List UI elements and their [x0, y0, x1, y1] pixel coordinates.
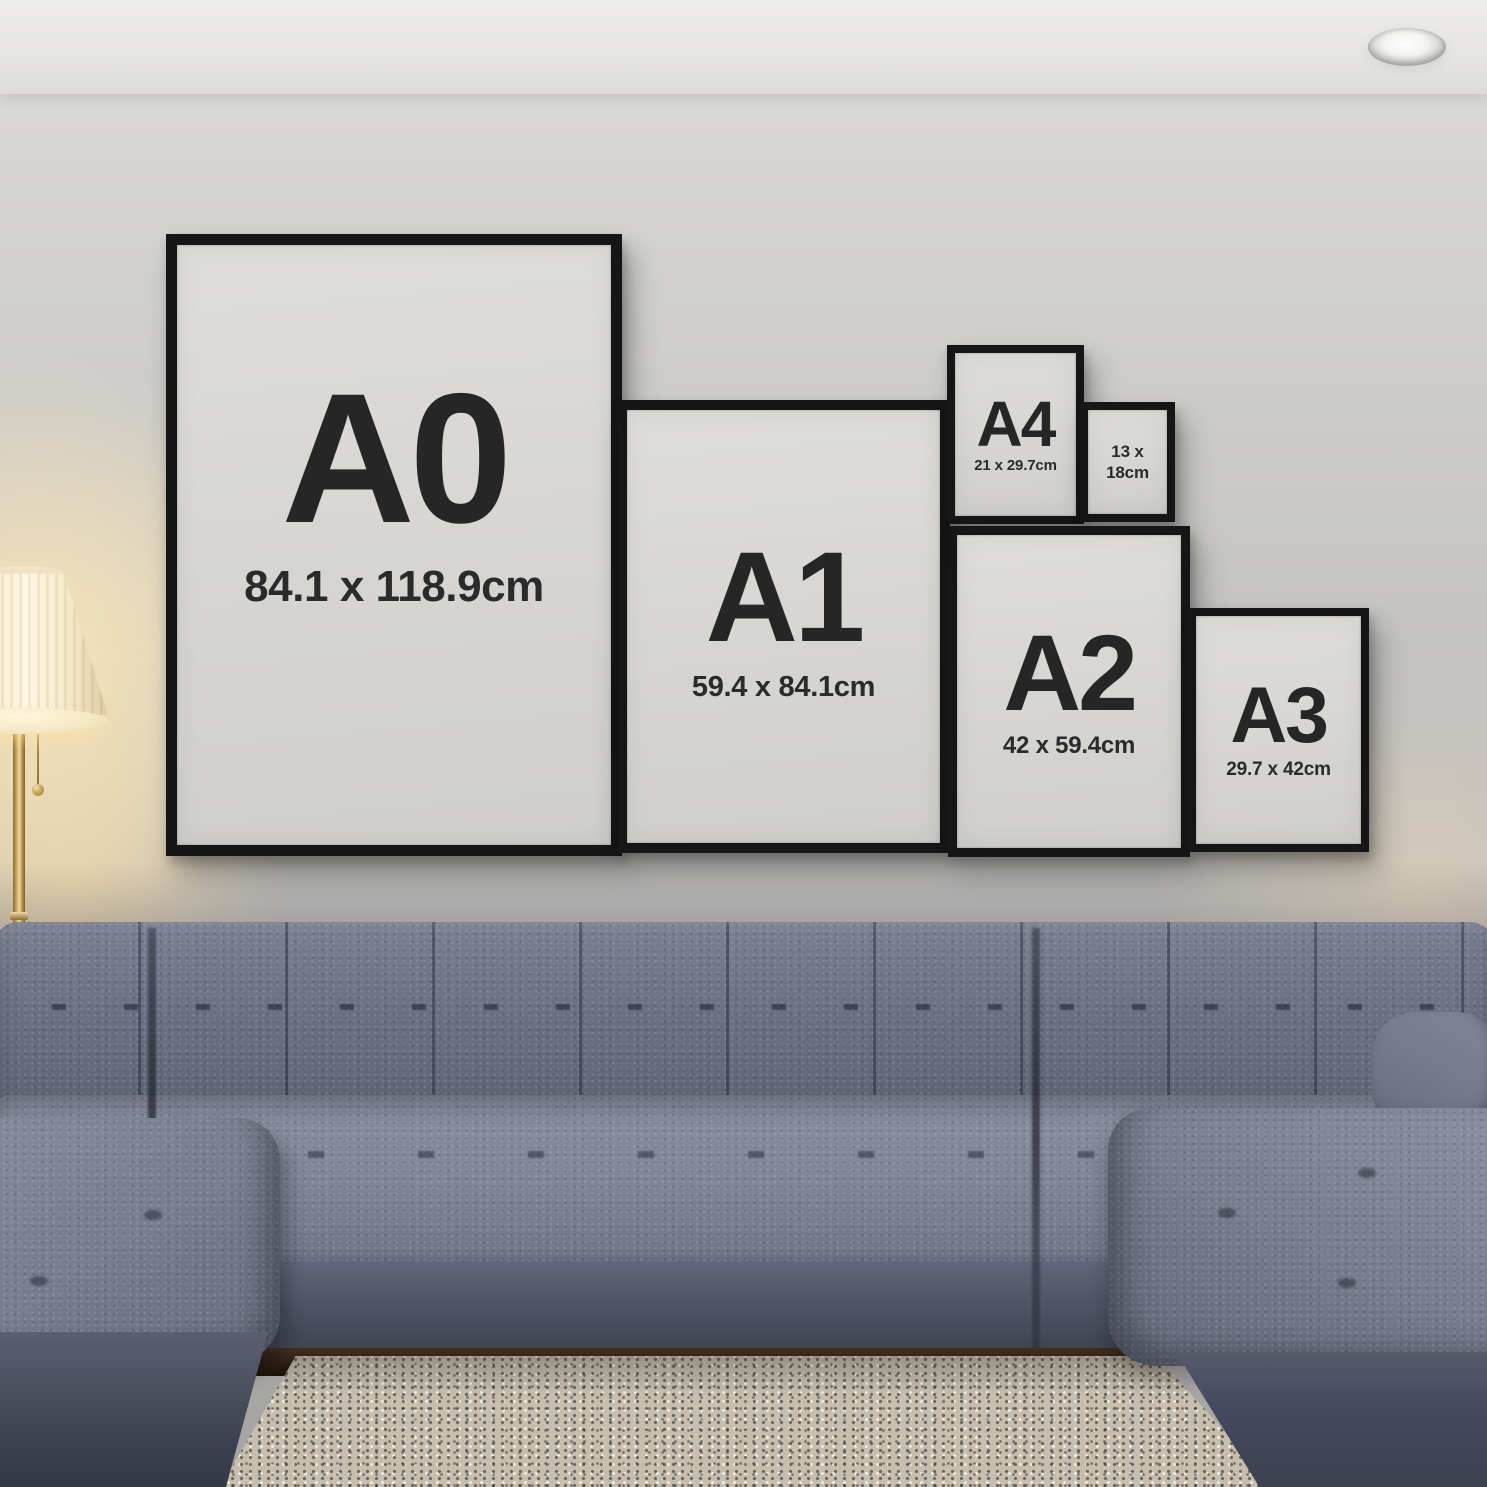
tuft-dimple [1338, 1278, 1356, 1288]
tuft-dimple [1218, 1208, 1236, 1218]
sofa-backrest-tufting [0, 1004, 1487, 1010]
frame-a3: A3 29.7 x 42cm [1188, 608, 1369, 852]
tuft-dimple [30, 1276, 48, 1286]
frame-a0-size: 84.1 x 118.9cm [244, 562, 544, 612]
sofa-right-chaise-cushion [1108, 1108, 1487, 1366]
frame-a1: A1 59.4 x 84.1cm [617, 400, 950, 853]
shag-rug [210, 1356, 1280, 1487]
tuft-dimple [1358, 1168, 1376, 1178]
frame-a1-label: A1 [706, 539, 862, 657]
frame-a3-label: A3 [1230, 679, 1326, 752]
frame-13x18-size-line2: 18cm [1106, 462, 1149, 483]
tuft-dimple [144, 1210, 162, 1220]
living-room-scene: A0 84.1 x 118.9cm A1 59.4 x 84.1cm A4 21… [0, 0, 1487, 1487]
frame-a4-label: A4 [977, 395, 1055, 454]
frame-13x18-size-line1: 13 x [1111, 441, 1143, 462]
ceiling [0, 0, 1487, 94]
lamp-pull-chain [37, 726, 39, 786]
frame-a1-size: 59.4 x 84.1cm [692, 671, 875, 704]
frame-a2-size: 42 x 59.4cm [1003, 732, 1135, 760]
frame-a0-label: A0 [281, 374, 506, 544]
frame-a3-paper: A3 29.7 x 42cm [1196, 616, 1361, 844]
frame-13x18-paper: 13 x 18cm [1088, 410, 1167, 514]
sofa-cushion-gap-right [1032, 928, 1040, 1352]
sofa-left-chaise-cushion [0, 1118, 280, 1363]
frame-a4-size: 21 x 29.7cm [974, 457, 1057, 474]
frame-a3-size: 29.7 x 42cm [1226, 759, 1331, 781]
lamp-pole-joint [10, 912, 28, 920]
frame-a2-paper: A2 42 x 59.4cm [957, 535, 1181, 848]
frame-a4: A4 21 x 29.7cm [947, 345, 1084, 524]
frame-a2-label: A2 [1003, 623, 1135, 722]
recessed-ceiling-light [1368, 28, 1446, 66]
frame-13x18: 13 x 18cm [1080, 402, 1175, 522]
frame-a1-paper: A1 59.4 x 84.1cm [627, 410, 940, 843]
frame-a4-paper: A4 21 x 29.7cm [955, 353, 1076, 516]
lamp-pull-chain-ball [32, 784, 44, 796]
wall-shadow [0, 862, 1487, 930]
frame-a0: A0 84.1 x 118.9cm [166, 234, 622, 856]
frame-a2: A2 42 x 59.4cm [948, 526, 1190, 857]
sofa-left-chaise-base [0, 1332, 268, 1487]
frame-a0-paper: A0 84.1 x 118.9cm [177, 245, 611, 845]
